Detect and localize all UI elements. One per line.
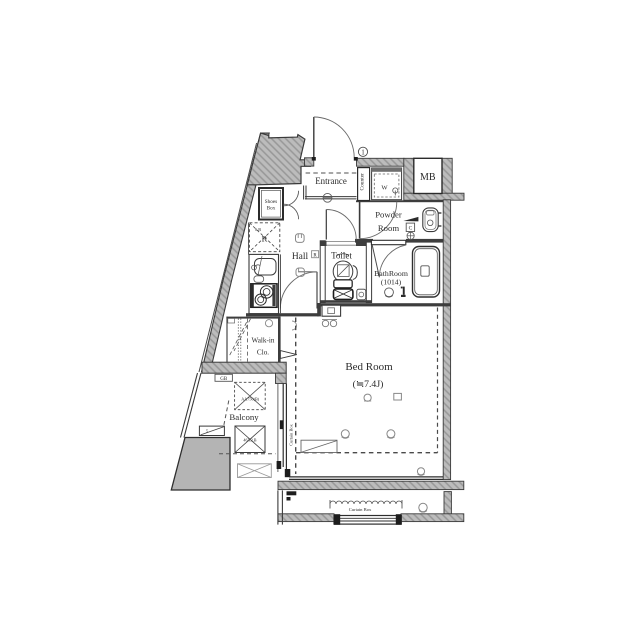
svg-text:GB: GB (220, 377, 228, 382)
svg-text:5: 5 (206, 429, 208, 434)
svg-text:Counter: Counter (360, 173, 366, 191)
svg-text:Walk-in: Walk-in (252, 336, 275, 344)
svg-text:Balcony: Balcony (229, 412, 259, 422)
svg-text:C: C (409, 226, 413, 232)
svg-text:1: 1 (361, 149, 365, 157)
svg-text:Shoes: Shoes (265, 199, 277, 205)
svg-text:S.B: S.B (255, 227, 261, 232)
svg-text:(≒7.4J): (≒7.4J) (353, 379, 384, 390)
svg-text:Curtain Box: Curtain Box (349, 507, 372, 512)
svg-text:Curtain Box: Curtain Box (289, 423, 294, 445)
svg-text:AA750(B): AA750(B) (241, 397, 260, 402)
svg-text:Powder: Powder (375, 209, 402, 219)
svg-text:(1014): (1014) (381, 278, 402, 287)
svg-text:W: W (381, 185, 388, 192)
svg-text:46X3.B: 46X3.B (243, 438, 256, 443)
svg-text:BathRoom: BathRoom (374, 269, 408, 278)
svg-text:Clo.: Clo. (257, 349, 269, 357)
svg-text:R: R (262, 234, 268, 244)
svg-text:Entrance: Entrance (315, 176, 347, 186)
svg-text:Box: Box (267, 205, 276, 211)
svg-text:MB: MB (420, 172, 436, 183)
svg-text:Hall: Hall (292, 252, 309, 262)
svg-text:Bed Room: Bed Room (345, 361, 393, 373)
svg-text:Room: Room (378, 223, 399, 233)
svg-text:Toilet: Toilet (331, 250, 352, 260)
